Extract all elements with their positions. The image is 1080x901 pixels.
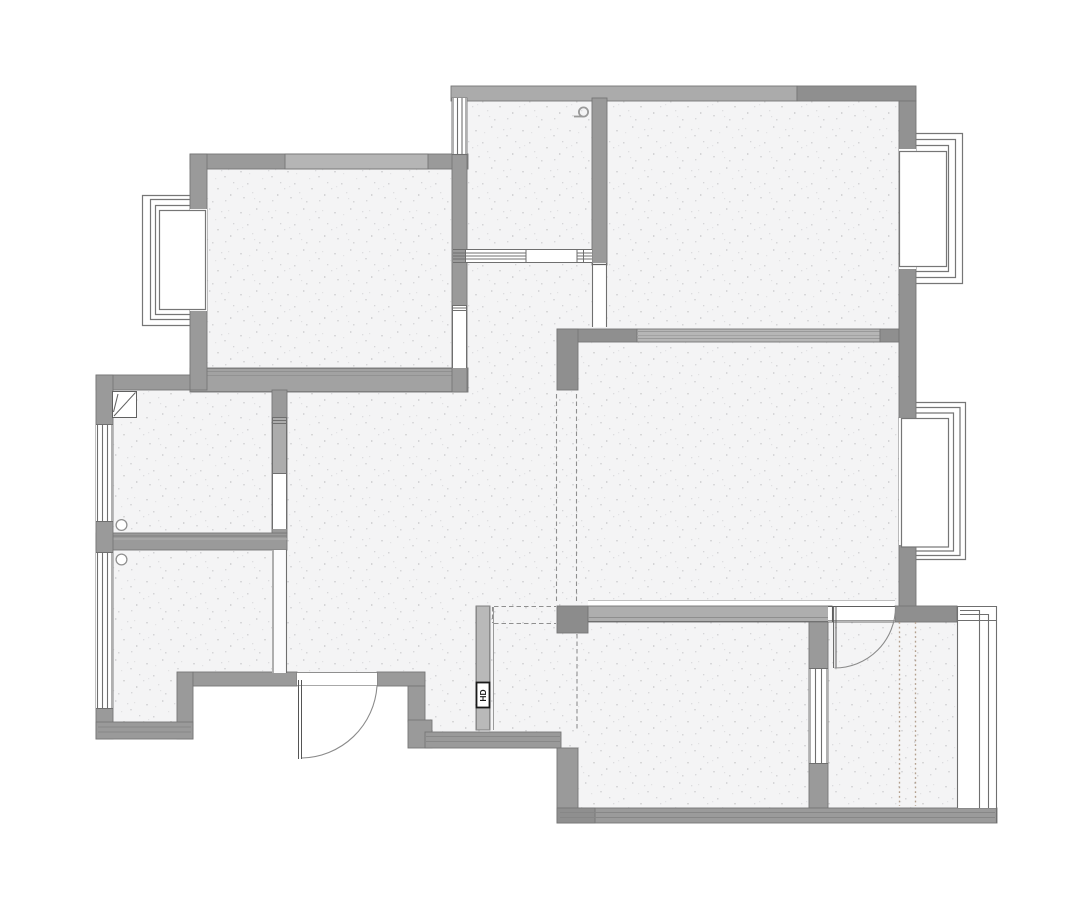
svg-text:HD: HD — [478, 689, 488, 701]
